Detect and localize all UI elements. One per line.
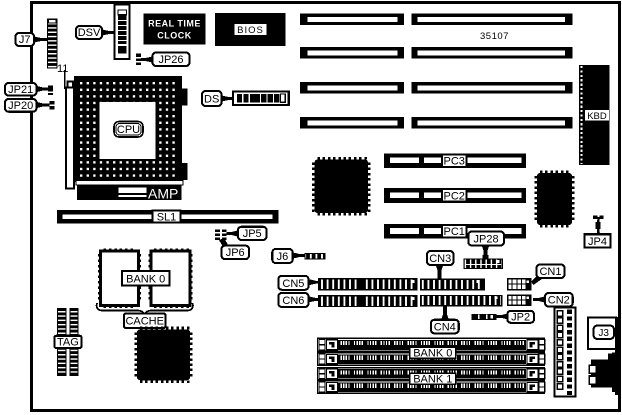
svg-text:JP4: JP4	[588, 236, 607, 248]
svg-text:BANK 0: BANK 0	[413, 347, 452, 359]
svg-text:J6: J6	[277, 251, 289, 263]
svg-text:JP26: JP26	[158, 54, 183, 66]
svg-text:AMP: AMP	[148, 186, 178, 202]
svg-text:CN6: CN6	[282, 295, 304, 307]
svg-text:JP6: JP6	[226, 247, 245, 259]
svg-text:TAG: TAG	[57, 337, 79, 349]
svg-text:PC3: PC3	[443, 156, 464, 168]
svg-text:CN4: CN4	[434, 322, 456, 334]
svg-text:CN1: CN1	[539, 266, 561, 278]
svg-text:JP2: JP2	[511, 312, 530, 324]
svg-text:CPU: CPU	[117, 124, 140, 136]
svg-text:CACHE: CACHE	[125, 316, 164, 328]
svg-text:REAL TIME: REAL TIME	[148, 19, 201, 29]
svg-text:35107: 35107	[480, 31, 509, 42]
svg-text:PC1: PC1	[443, 226, 464, 238]
svg-text:JP20: JP20	[8, 100, 33, 112]
svg-text:11: 11	[57, 63, 68, 75]
svg-text:BIOS: BIOS	[237, 25, 264, 36]
svg-text:J7: J7	[19, 34, 31, 46]
svg-text:PC2: PC2	[443, 190, 464, 202]
svg-text:CN5: CN5	[282, 278, 304, 290]
svg-text:CLOCK: CLOCK	[157, 31, 192, 41]
svg-text:KBD: KBD	[587, 111, 607, 122]
svg-text:DSV: DSV	[78, 27, 101, 39]
svg-text:JP21: JP21	[8, 84, 33, 96]
svg-text:J3: J3	[598, 328, 609, 339]
svg-text:CN3: CN3	[429, 253, 451, 265]
svg-text:DS: DS	[204, 94, 219, 106]
svg-text:JP28: JP28	[474, 234, 499, 246]
svg-text:BANK 0: BANK 0	[126, 273, 165, 285]
svg-text:CN2: CN2	[548, 295, 570, 307]
svg-text:JP5: JP5	[243, 228, 262, 240]
svg-text:BANK 1: BANK 1	[413, 373, 452, 385]
svg-text:SL1: SL1	[157, 212, 177, 224]
